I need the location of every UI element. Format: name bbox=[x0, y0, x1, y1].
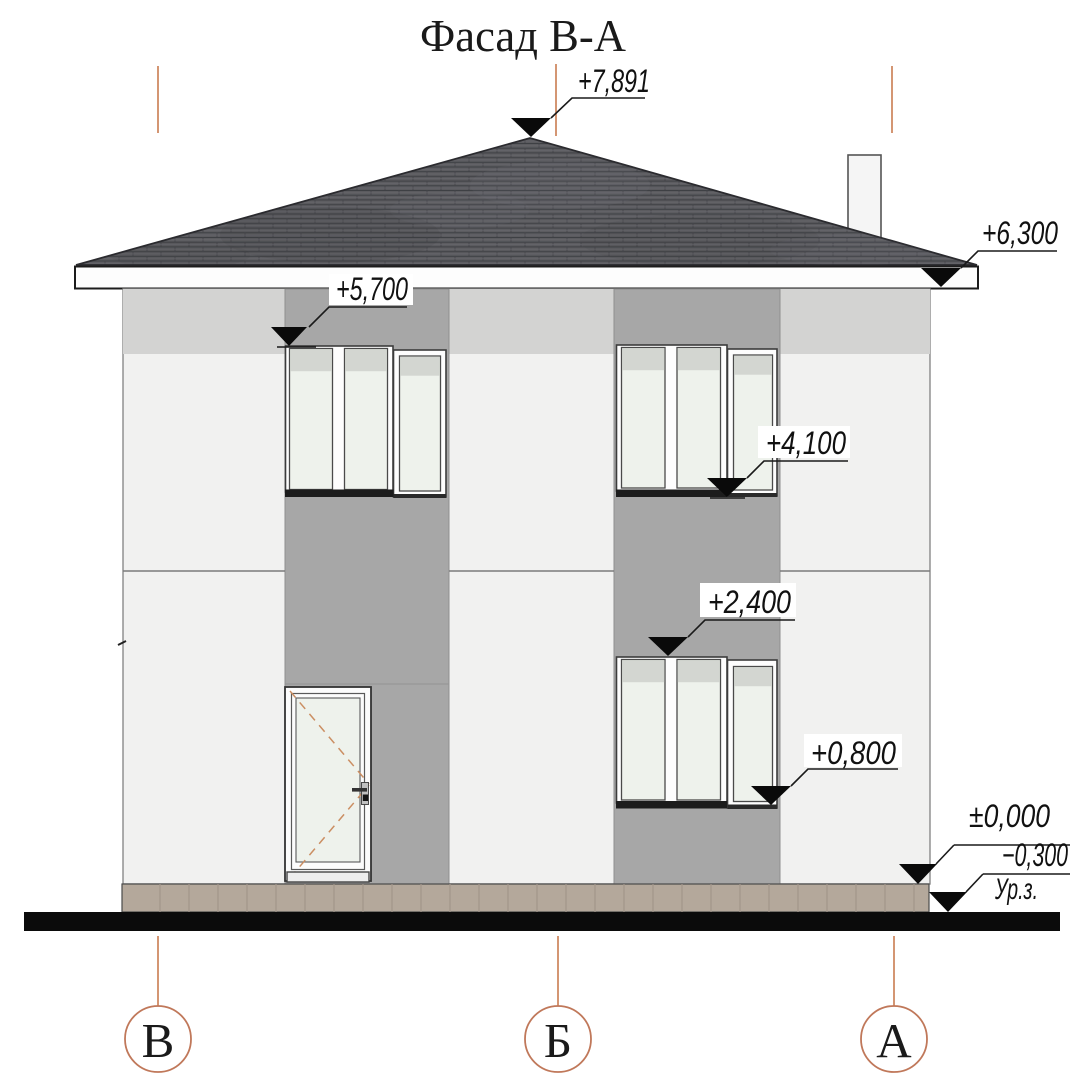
svg-text:±0,000: ±0,000 bbox=[969, 798, 1050, 834]
svg-text:+2,400: +2,400 bbox=[708, 584, 791, 620]
svg-text:−0,300: −0,300 bbox=[1002, 837, 1068, 873]
svg-text:+5,700: +5,700 bbox=[336, 271, 408, 307]
svg-text:+7,891: +7,891 bbox=[578, 63, 650, 99]
svg-text:Б: Б bbox=[544, 1013, 572, 1068]
svg-text:А: А bbox=[876, 1013, 912, 1068]
svg-text:+4,100: +4,100 bbox=[766, 425, 846, 461]
svg-text:+0,800: +0,800 bbox=[811, 735, 896, 771]
svg-text:+6,300: +6,300 bbox=[982, 215, 1058, 251]
svg-text:Ур.з.: Ур.з. bbox=[994, 873, 1038, 906]
svg-text:В: В bbox=[142, 1013, 175, 1068]
svg-text:Фасад В-А: Фасад В-А bbox=[420, 10, 626, 61]
